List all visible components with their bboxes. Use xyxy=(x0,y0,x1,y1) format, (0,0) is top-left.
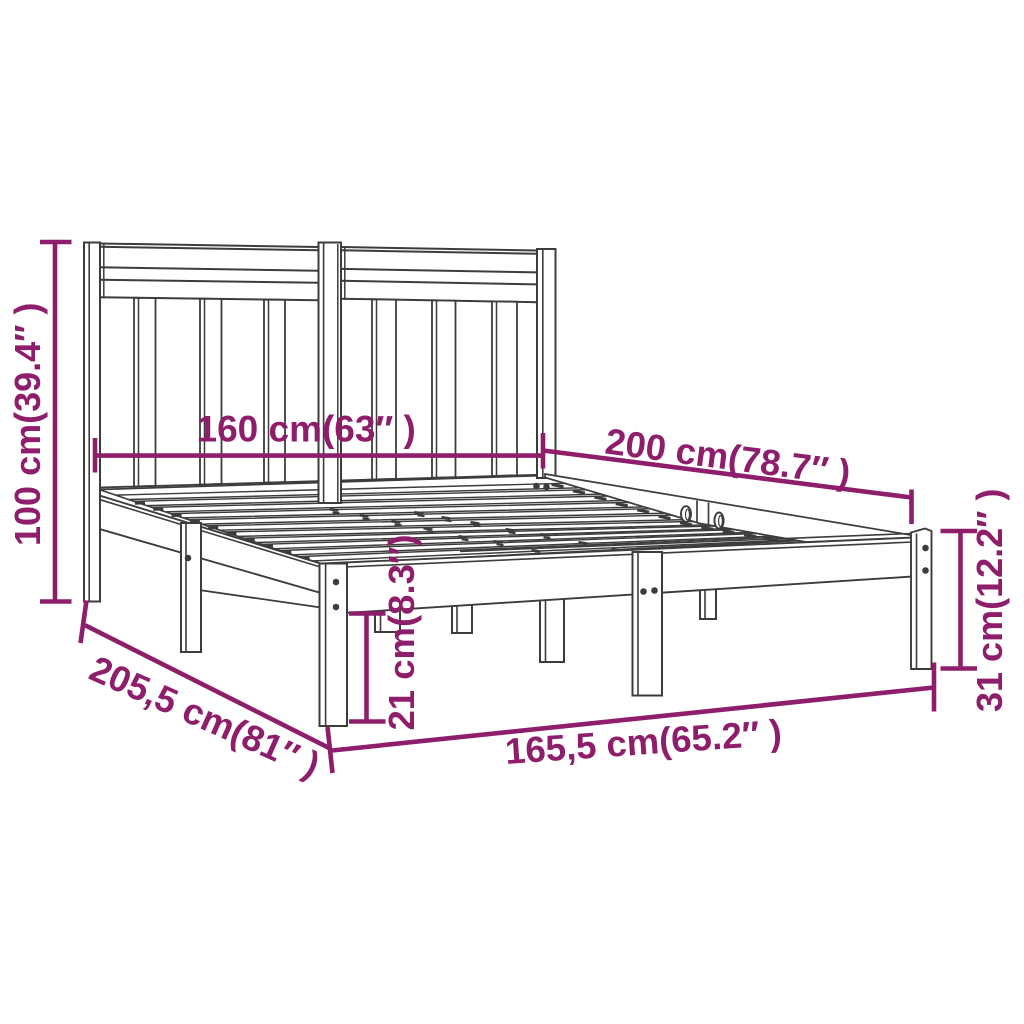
svg-text:160 cm(63″ ): 160 cm(63″ ) xyxy=(197,409,416,450)
svg-text:21 cm(8.3″): 21 cm(8.3″) xyxy=(381,534,422,730)
svg-text:100 cm(39.4″ ): 100 cm(39.4″ ) xyxy=(7,303,48,546)
svg-text:31 cm(12.2″ ): 31 cm(12.2″ ) xyxy=(969,489,1010,712)
